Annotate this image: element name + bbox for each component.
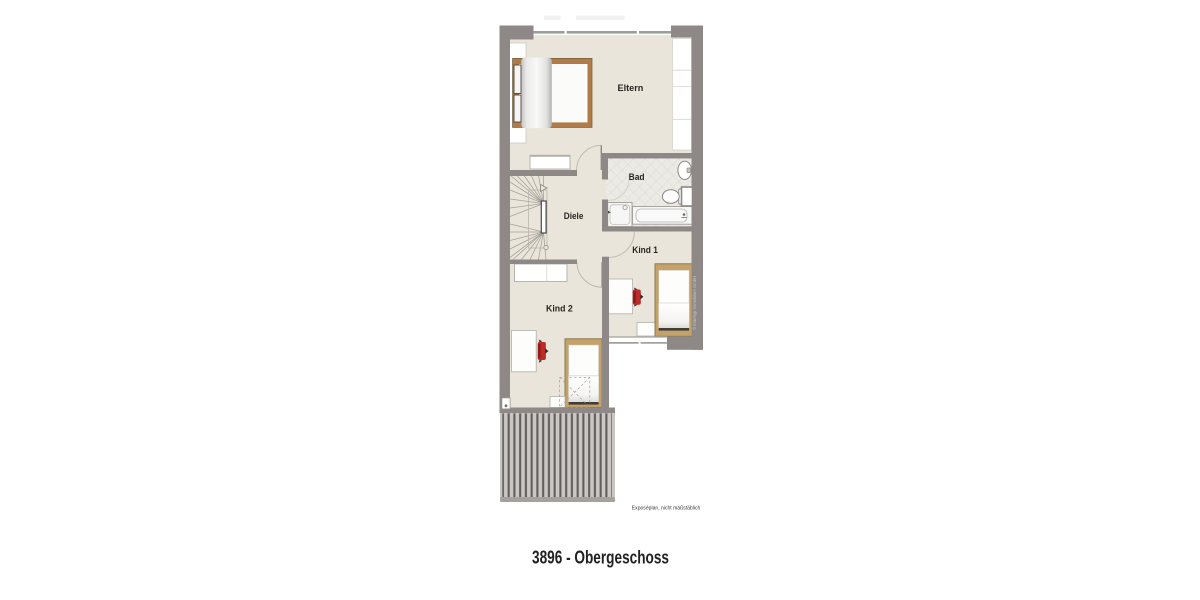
svg-text:Diele: Diele [564, 211, 584, 221]
svg-text:3896 - Obergeschoss: 3896 - Obergeschoss [532, 547, 669, 568]
svg-text:Exposéplan, nicht maßstäblich: Exposéplan, nicht maßstäblich [632, 506, 701, 512]
svg-text:Kind 2: Kind 2 [546, 304, 573, 314]
svg-text:© Interhyp Immobilien GmbH: © Interhyp Immobilien GmbH [692, 276, 697, 330]
svg-text:Bad: Bad [629, 172, 645, 182]
svg-text:Eltern: Eltern [618, 83, 644, 93]
svg-text:Kind 1: Kind 1 [632, 245, 658, 255]
